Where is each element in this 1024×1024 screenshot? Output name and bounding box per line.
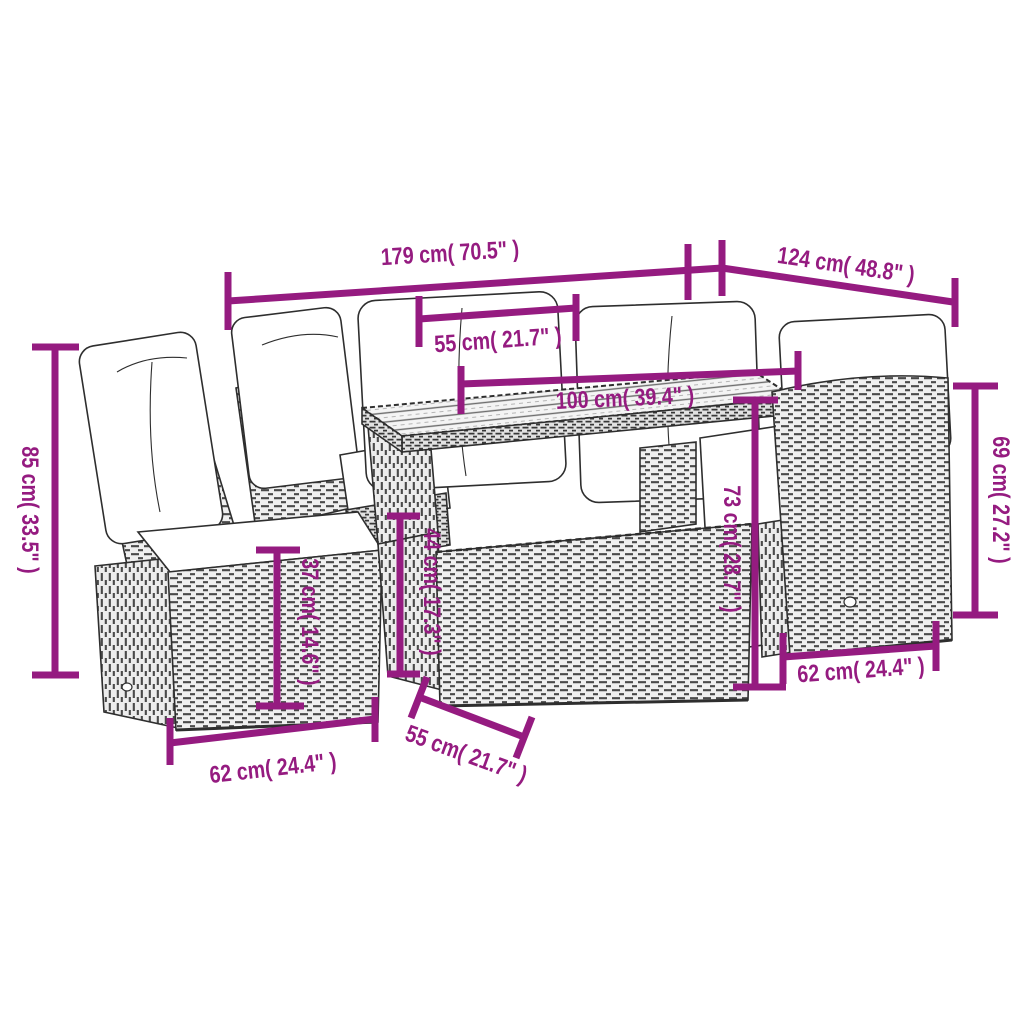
dimension-label-73cm: 73 cm( 28.7" ) <box>719 485 743 612</box>
rivet-detail <box>122 683 132 691</box>
dimension-label-44cm: 44 cm( 17.3" ) <box>419 528 443 655</box>
rivet-detail <box>844 597 856 607</box>
furniture-and-dimensions-svg <box>0 0 1024 1024</box>
product-dimension-diagram: 179 cm( 70.5" ) 124 cm( 48.8" ) 55 cm( 2… <box>0 0 1024 1024</box>
dimension-label-69cm: 69 cm( 27.2" ) <box>988 436 1012 563</box>
dimension-label-100cm: 100 cm( 39.4" ) <box>555 384 694 414</box>
stool <box>138 512 382 730</box>
dimension-label-37cm: 37 cm( 14.6" ) <box>297 558 321 685</box>
dimension-label-85cm: 85 cm( 33.5" ) <box>17 446 41 573</box>
